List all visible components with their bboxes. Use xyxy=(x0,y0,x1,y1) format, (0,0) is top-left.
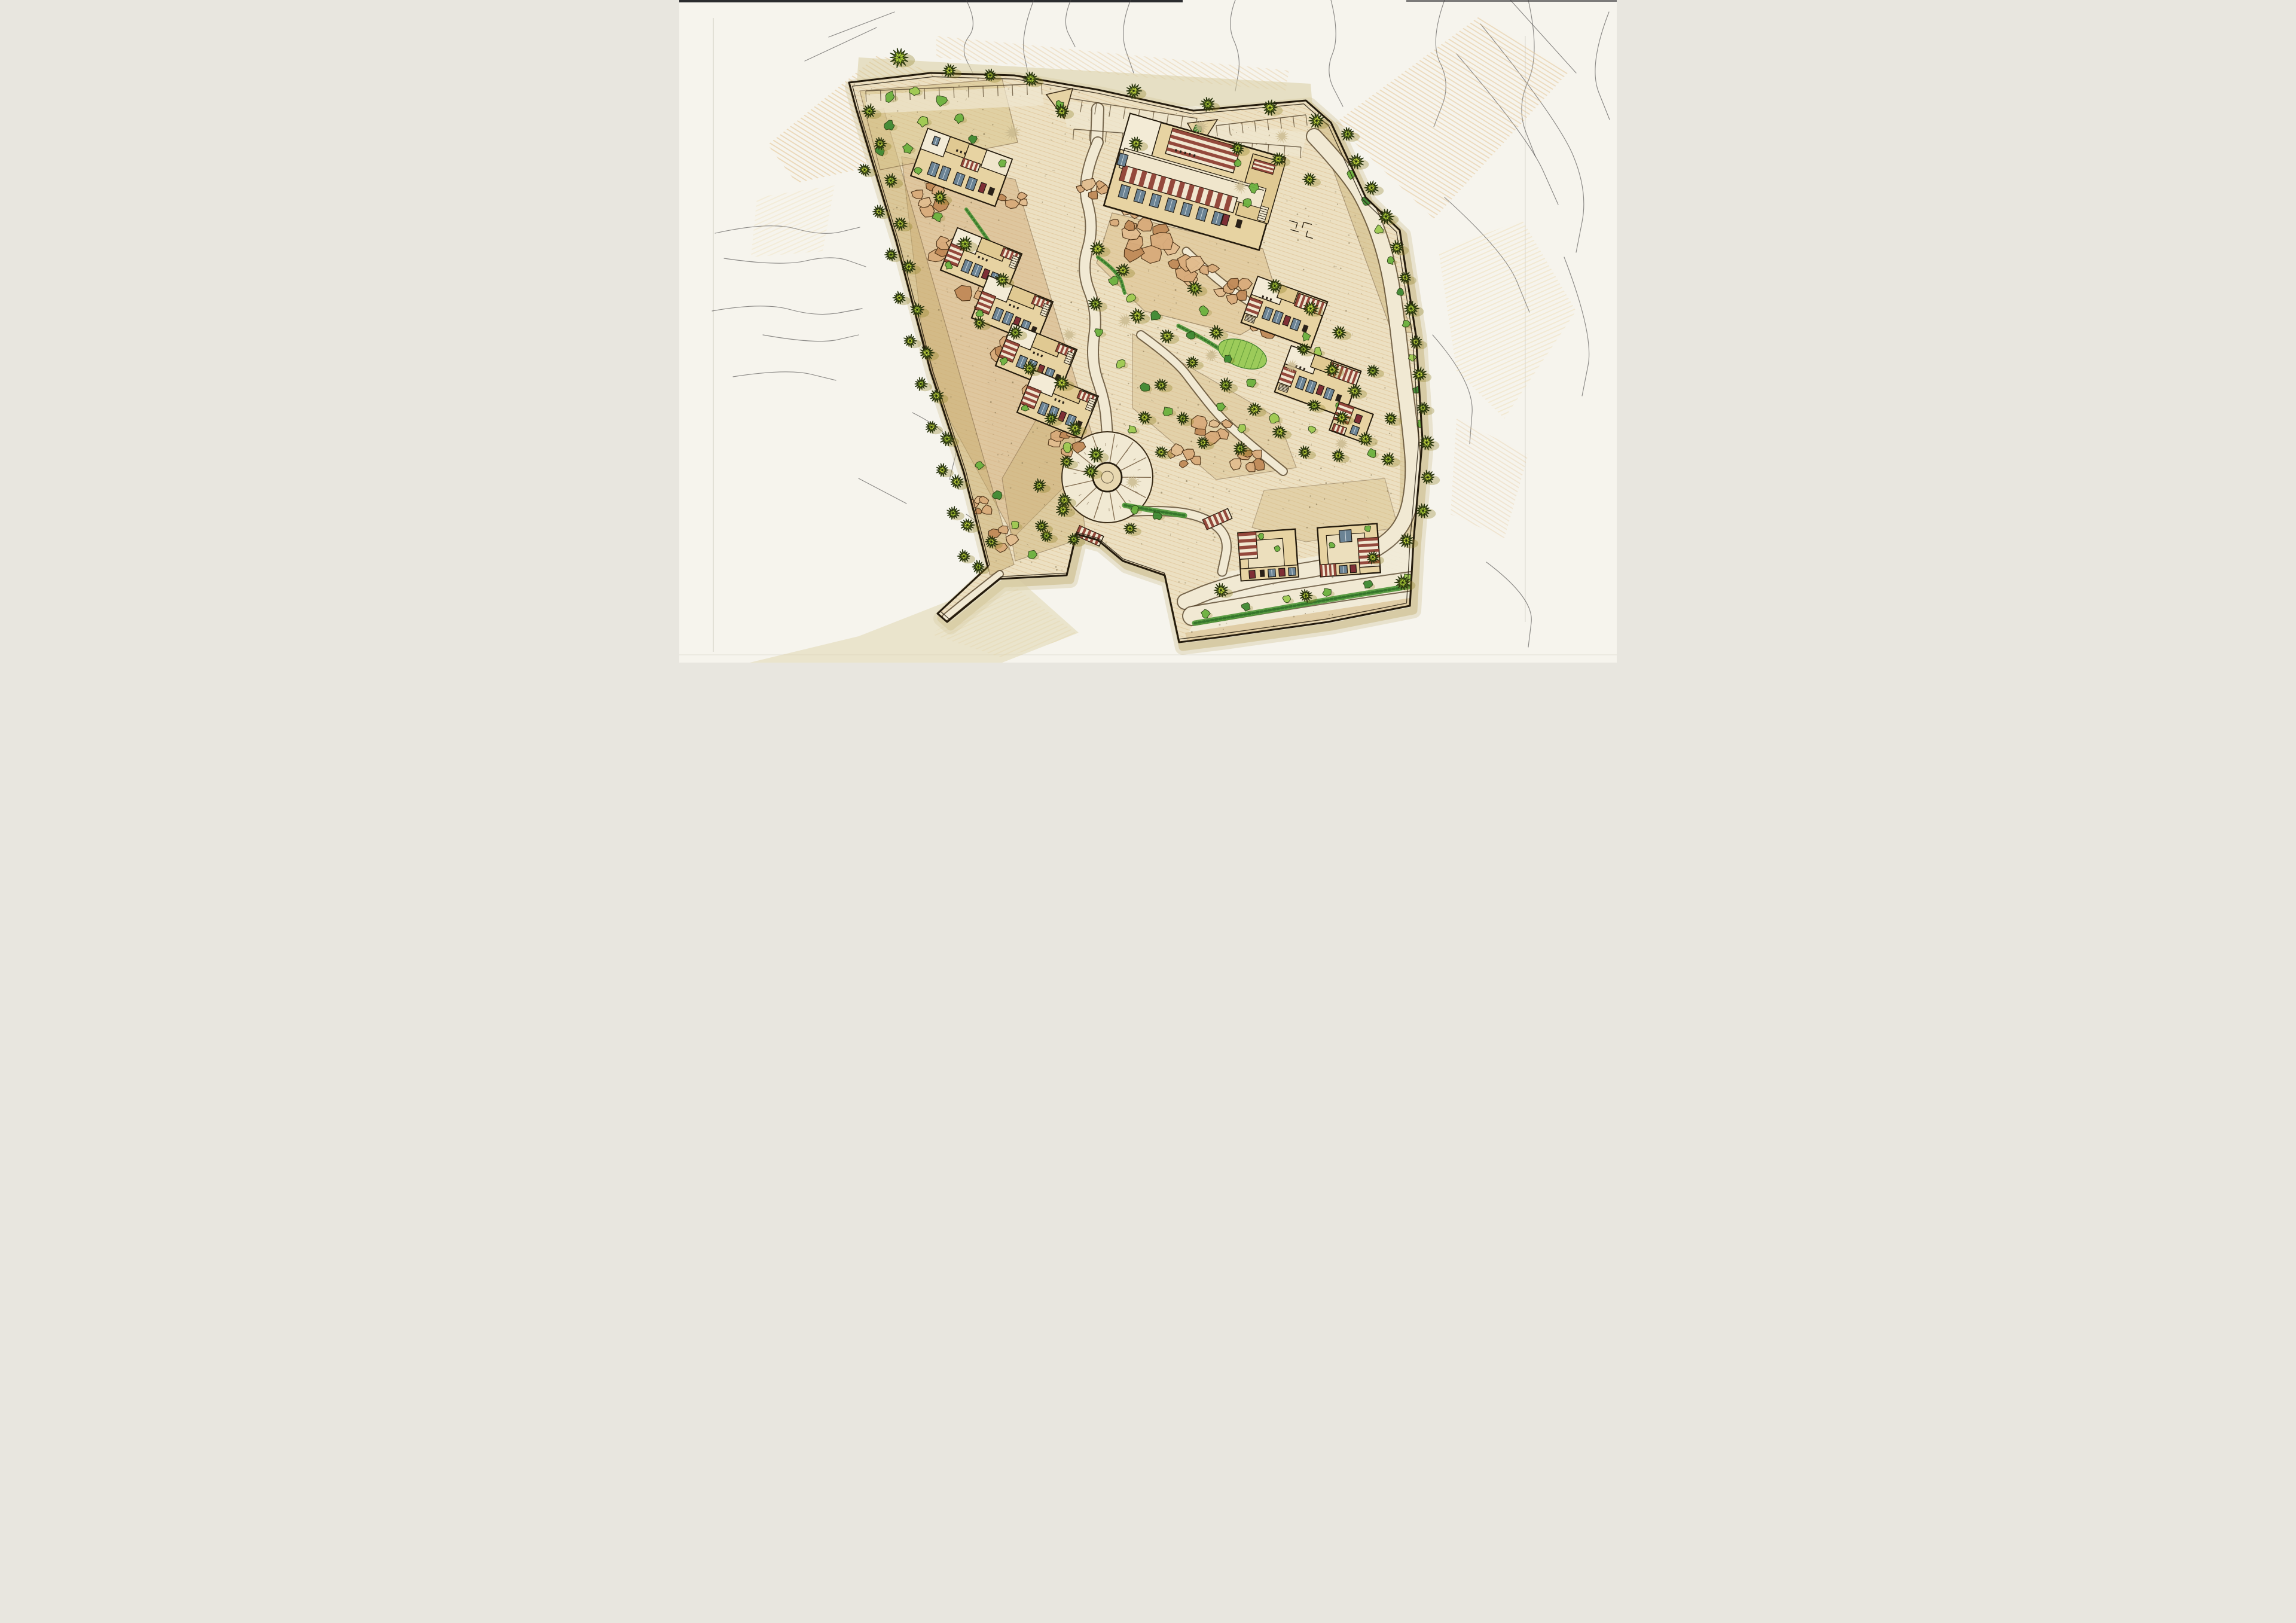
palm-tree xyxy=(947,507,964,520)
terrain-line xyxy=(1595,12,1610,120)
palm-tree xyxy=(890,48,915,68)
parking-stall-line xyxy=(866,91,866,102)
scanned-paper-sheet xyxy=(679,0,1617,663)
crayon-hatch-patch xyxy=(1451,419,1528,538)
terrain-line xyxy=(829,12,894,37)
terrain-line xyxy=(1329,0,1343,106)
palm-tree xyxy=(926,421,943,434)
terrain-line xyxy=(1564,257,1589,396)
terrain-line xyxy=(859,478,906,504)
palm-tree xyxy=(936,463,954,477)
palm-tree xyxy=(1349,154,1369,170)
parking-stall-line xyxy=(1042,84,1042,94)
scanner-edge-strip xyxy=(679,0,1183,2)
terrain-line xyxy=(1486,562,1531,647)
parking-stall-line xyxy=(983,86,984,97)
terrain-line xyxy=(712,306,862,315)
parking-stall-line xyxy=(881,90,881,101)
parking-stall-line xyxy=(969,87,969,97)
site-plan xyxy=(679,0,1617,663)
site-plan-canvas xyxy=(679,0,1617,663)
building-courtyard-south-1 xyxy=(1238,529,1298,581)
parking-stall-line xyxy=(954,87,954,98)
terrain-line xyxy=(724,258,866,267)
parking-stall-line xyxy=(924,89,925,99)
crayon-hatch-patch xyxy=(751,185,835,257)
palm-tree xyxy=(1364,181,1384,196)
rock-stone xyxy=(1110,219,1119,226)
rock-stone xyxy=(999,526,1009,534)
rock-stone xyxy=(1088,191,1097,199)
building-courtyard-south-2 xyxy=(1317,524,1380,577)
terrain-line xyxy=(964,0,973,74)
parking-stall-line xyxy=(1027,84,1028,95)
parking-stall-line xyxy=(1012,85,1013,96)
terrain-line xyxy=(763,335,859,341)
parking-stall-line xyxy=(998,86,999,96)
terrain-line xyxy=(1065,0,1075,47)
crayon-hatch-patch xyxy=(1439,220,1576,419)
palm-tree xyxy=(957,550,975,563)
terrain-line xyxy=(733,372,836,380)
